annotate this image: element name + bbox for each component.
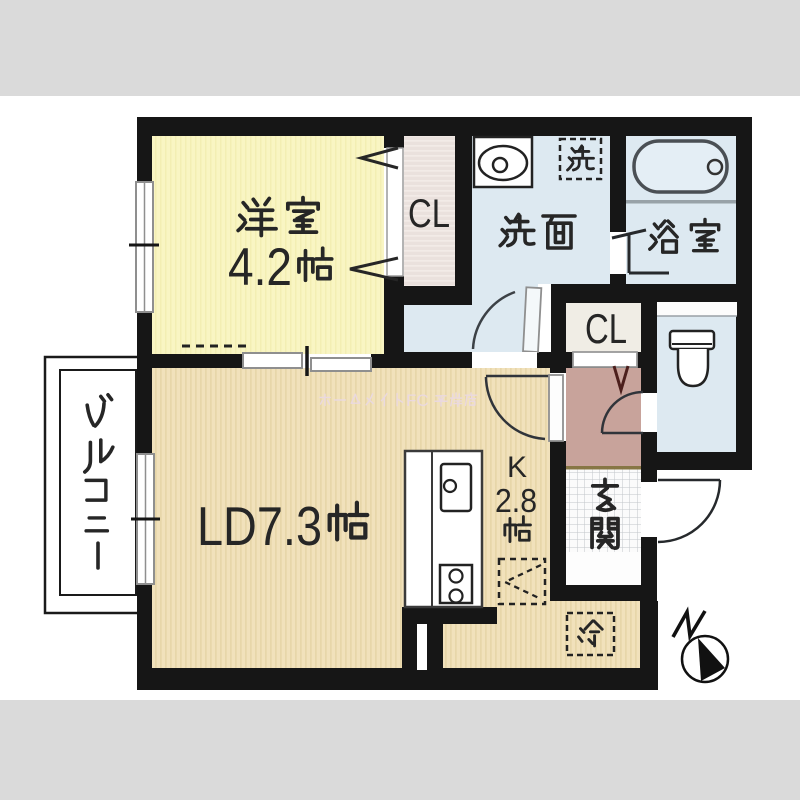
svg-text:K: K: [507, 451, 527, 484]
svg-text:CL: CL: [408, 192, 450, 236]
svg-text:4.2: 4.2: [228, 238, 292, 297]
svg-text:2.8: 2.8: [495, 482, 537, 519]
svg-text:CL: CL: [585, 305, 627, 352]
svg-text:LD7.3: LD7.3: [197, 495, 322, 557]
svg-text:FC: FC: [406, 391, 429, 410]
